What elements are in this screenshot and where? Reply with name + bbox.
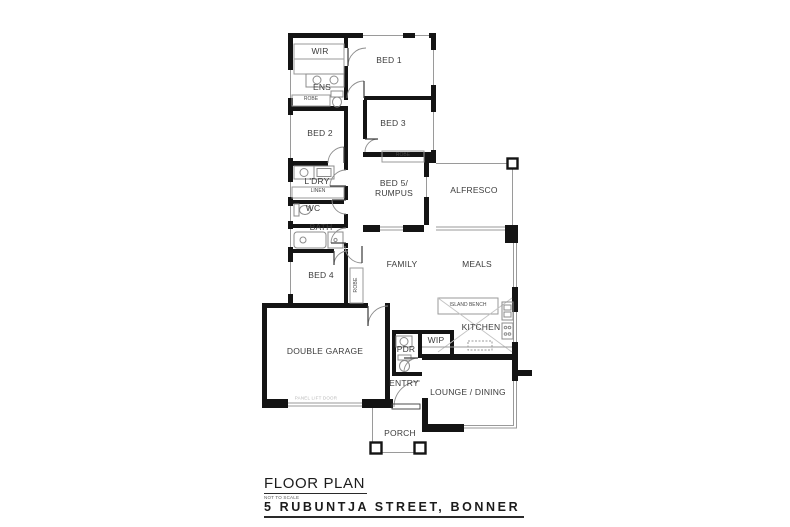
bed1-door-arc [347,81,364,98]
room-label-bed5: BED 5/ RUMPUS [375,179,413,199]
room-label-entry: ENTRY [389,379,419,389]
room-label-wip: WIP [428,336,445,346]
room-label-alfresco: ALFRESCO [450,186,497,196]
bed2-door-arc [328,147,344,163]
room-label-robe-bed2: ROBE [304,97,318,103]
plan-address: 5 RUBUNTJA STREET, BONNER [264,500,524,518]
room-label-bed2: BED 2 [307,129,333,139]
porch-post-icon [415,443,426,454]
room-label-garage: DOUBLE GARAGE [287,347,363,357]
room-label-bed3: BED 3 [380,119,406,129]
room-label-porch: PORCH [384,429,416,439]
room-label-ens: ENS [313,83,331,93]
room-label-bath: BATH [310,223,333,233]
room-label-pdr: PDR [397,345,416,355]
bathtub-icon [294,232,343,248]
room-label-meals: MEALS [462,260,492,270]
plan-title: FLOOR PLAN [264,475,367,494]
room-label-kitchen: KITCHEN [462,323,501,333]
garage-door-label: PANEL LIFT DOOR [295,395,337,400]
bath-door-arc [331,228,346,243]
room-label-wir: WIR [311,47,328,57]
floor-plan-page: WIR BED 1 ENS ROBE BED 2 BED 3 ROBE L'DR… [0,0,790,527]
room-label-wc: WC [306,204,321,214]
cooktop-icon [502,323,513,339]
ensuite-toilet-icon [331,91,343,107]
laundry-door-arc [330,170,346,186]
room-label-island-bench: ISLAND BENCH [450,303,487,309]
front-door-leaf [392,404,420,409]
shower-icon [328,232,343,248]
kitchen-sink-icon [502,302,513,320]
room-label-bed4: BED 4 [308,271,334,281]
bed3-door-arc [365,139,378,152]
wir-door-arc [348,48,366,66]
alfresco-post-icon [508,159,518,169]
title-block: FLOOR PLAN NOT TO SCALE [264,475,367,500]
room-label-family: FAMILY [387,260,418,270]
room-label-lounge: LOUNGE / DINING [430,388,506,398]
room-label-robe-bed4: ROBE [354,278,360,293]
room-label-robe-bed3: ROBE [396,153,410,159]
room-label-ldry: L'DRY [304,177,329,187]
room-label-linen: LINEN [311,189,326,195]
porch-post-icon [371,443,382,454]
room-label-bed1: BED 1 [376,56,402,66]
dishwasher-outline [468,341,492,350]
